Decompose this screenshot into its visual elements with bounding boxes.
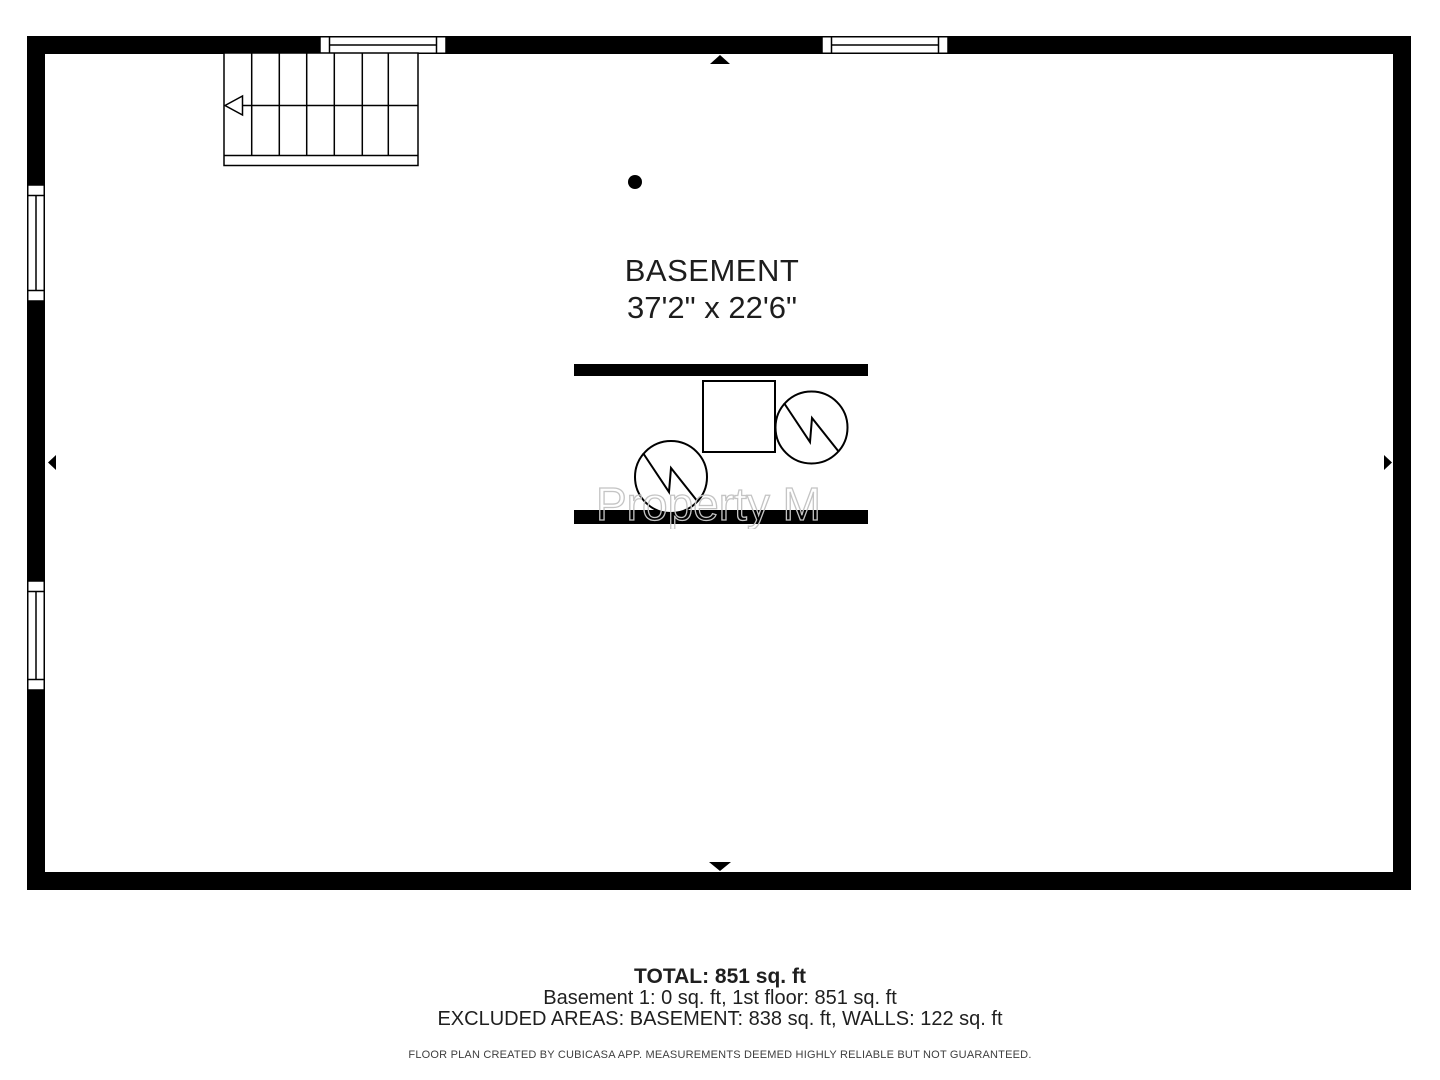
- window-left-upper-icon: [28, 185, 45, 301]
- floorplan-page: Property M BASEMENT 37'2" x 22'6" TOTAL:…: [0, 0, 1440, 1080]
- disclaimer-line: FLOOR PLAN CREATED BY CUBICASA APP. MEAS…: [0, 1045, 1440, 1067]
- furnace-icon: [703, 381, 775, 452]
- excluded-areas-line: EXCLUDED AREAS: BASEMENT: 838 sq. ft, WA…: [0, 1009, 1440, 1031]
- stairs-icon: [224, 53, 418, 166]
- area-summary: TOTAL: 851 sq. ft Basement 1: 0 sq. ft, …: [0, 966, 1440, 1066]
- window-left-lower-icon: [28, 581, 45, 690]
- window-top-right-icon: [822, 37, 948, 54]
- floorplan-drawing: Property M: [0, 0, 1440, 1080]
- water-heater-right-icon: [776, 392, 848, 464]
- room-dimensions: 37'2" x 22'6": [625, 289, 800, 326]
- ceiling-fixture-dot-icon: [628, 175, 642, 189]
- window-top-left-icon: [320, 37, 446, 54]
- total-area-line: TOTAL: 851 sq. ft: [0, 966, 1440, 988]
- utility-wall-top: [574, 364, 868, 376]
- exterior-walls: [36, 45, 1402, 881]
- room-label-block: BASEMENT 37'2" x 22'6": [625, 252, 800, 326]
- floor-breakdown-line: Basement 1: 0 sq. ft, 1st floor: 851 sq.…: [0, 988, 1440, 1010]
- room-name: BASEMENT: [625, 252, 800, 289]
- watermark-text: Property M: [596, 478, 821, 530]
